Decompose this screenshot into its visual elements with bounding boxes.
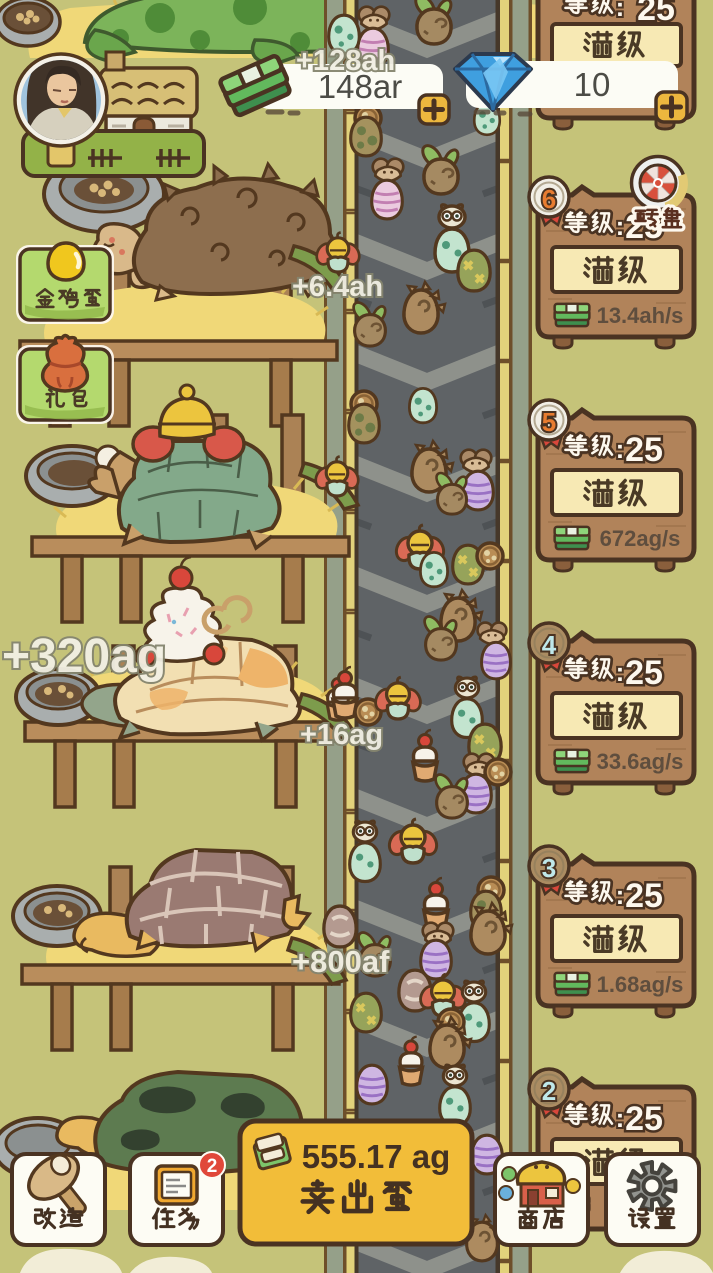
svg-text:+800af: +800af (292, 944, 390, 979)
svg-text:33.6ag/s: 33.6ag/s (597, 749, 684, 774)
svg-text:13.4ah/s: 13.4ah/s (597, 303, 684, 328)
svg-text:2: 2 (207, 1156, 218, 1177)
svg-text::: : (616, 1103, 625, 1133)
svg-text:25: 25 (625, 654, 663, 692)
svg-text:1.68ag/s: 1.68ag/s (597, 972, 684, 997)
svg-text:5: 5 (542, 407, 556, 437)
svg-text:25: 25 (625, 431, 663, 469)
svg-text:+6.4ah: +6.4ah (292, 271, 383, 303)
svg-text:+16ag: +16ag (300, 719, 383, 751)
svg-text:+320ag: +320ag (2, 630, 166, 683)
svg-text:+128ah: +128ah (296, 45, 395, 77)
svg-text::: : (616, 434, 625, 464)
svg-text::: : (616, 657, 625, 687)
svg-text:555.17 ag: 555.17 ag (302, 1138, 451, 1175)
svg-text::: : (616, 880, 625, 910)
svg-text::: : (616, 211, 625, 241)
svg-text:2: 2 (542, 1076, 556, 1106)
svg-text:672ag/s: 672ag/s (600, 526, 681, 551)
svg-text:6: 6 (542, 184, 556, 214)
svg-text:3: 3 (542, 853, 556, 883)
svg-text:4: 4 (542, 630, 557, 660)
svg-text:10: 10 (574, 66, 611, 103)
svg-text:25: 25 (625, 1100, 663, 1138)
svg-text::: : (616, 0, 625, 22)
svg-text:25: 25 (625, 877, 663, 915)
